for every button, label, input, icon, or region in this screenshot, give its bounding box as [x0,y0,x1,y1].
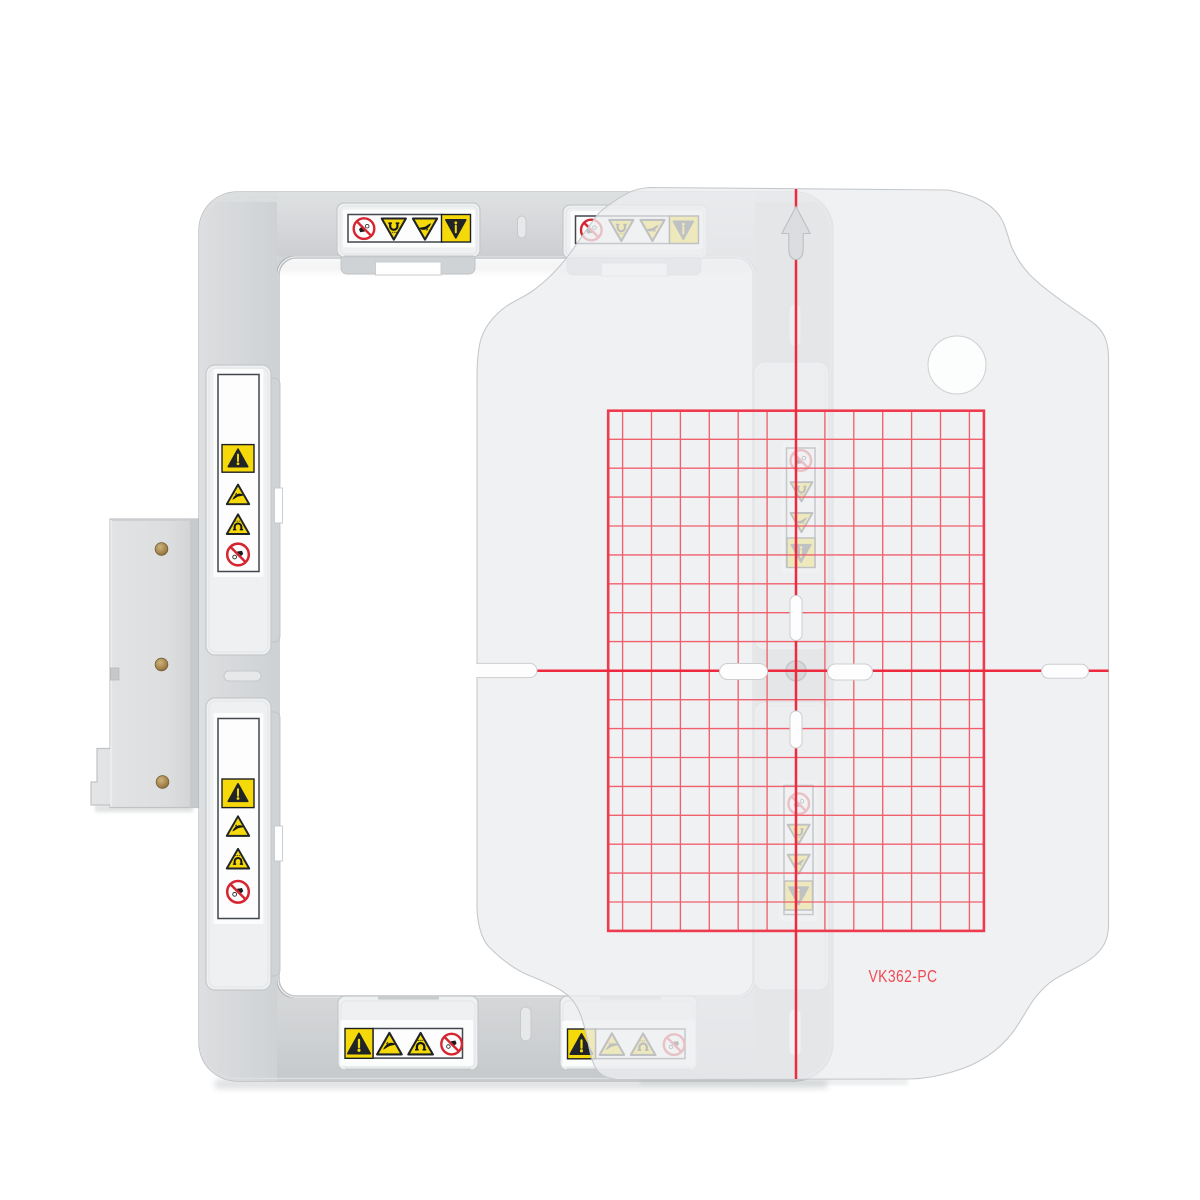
svg-text:VK362-PC: VK362-PC [869,966,938,986]
